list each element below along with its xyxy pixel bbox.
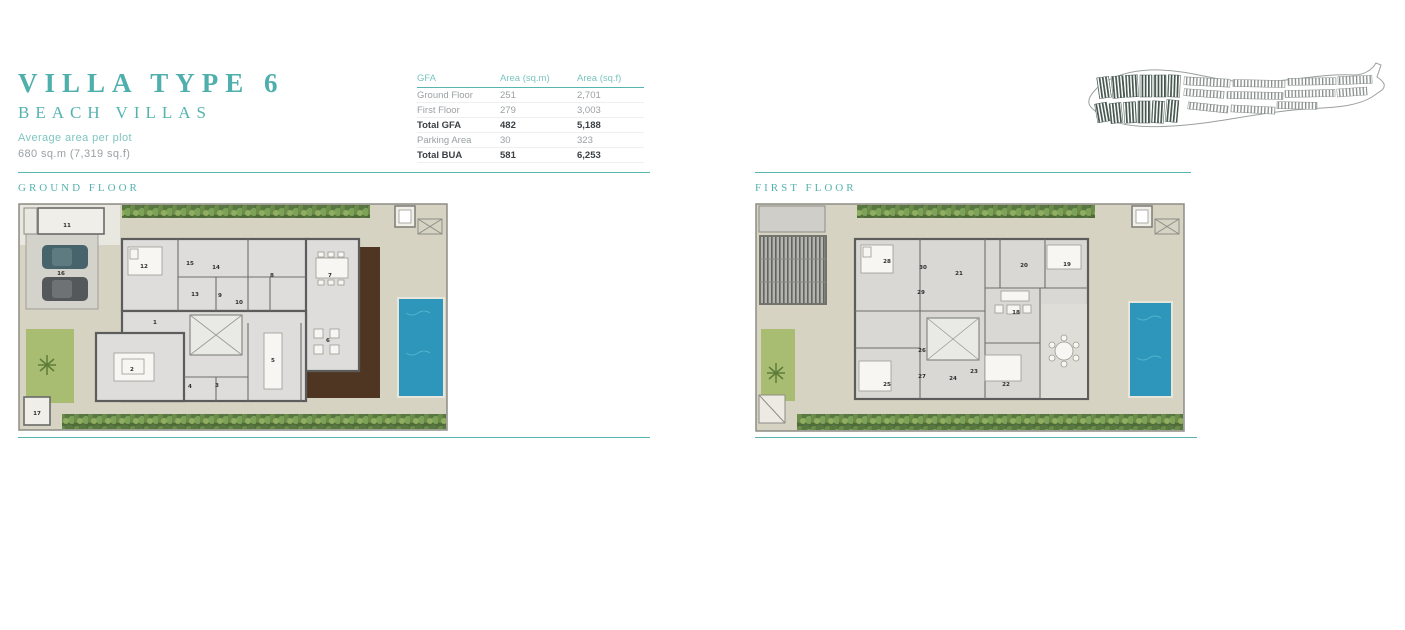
roof-slab xyxy=(759,206,825,232)
site-units-highlighted xyxy=(1095,75,1181,124)
hedge-bottom xyxy=(62,414,446,429)
room-number-22: 22 xyxy=(1002,382,1010,388)
staircase xyxy=(190,315,242,355)
first-floor-label: FIRST FLOOR xyxy=(755,182,857,194)
gfa-row-ground-floor: Ground Floor 251 2,701 xyxy=(417,88,644,103)
room-number-29: 29 xyxy=(917,290,925,296)
swimming-pool xyxy=(398,298,444,397)
room-number-5: 5 xyxy=(271,358,275,364)
staircase xyxy=(927,318,979,360)
first-floor-plan: 18192021222324252627282930 xyxy=(755,203,1185,432)
room-number-17: 17 xyxy=(33,411,41,417)
room-number-10: 10 xyxy=(235,300,243,306)
room-number-11: 11 xyxy=(63,223,71,229)
room-number-12: 12 xyxy=(140,264,148,270)
room-number-24: 24 xyxy=(949,376,957,382)
col-area-sqf: Area (sq.f) xyxy=(577,73,644,84)
ground-floor-label: GROUND FLOOR xyxy=(18,182,140,194)
room-number-3: 3 xyxy=(215,383,219,389)
room-number-18: 18 xyxy=(1012,310,1020,316)
pergola xyxy=(760,236,826,304)
utility-room xyxy=(24,208,37,234)
gfa-row-parking-area: Parking Area 30 323 xyxy=(417,133,644,148)
average-area-label: Average area per plot xyxy=(18,132,132,144)
page-subtitle: BEACH VILLAS xyxy=(18,103,212,123)
room-number-1: 1 xyxy=(153,320,157,326)
room-number-30: 30 xyxy=(919,265,927,271)
room-number-16: 16 xyxy=(57,271,65,277)
col-area-sqm: Area (sq.m) xyxy=(500,73,577,84)
room-number-15: 15 xyxy=(186,261,194,267)
lawn xyxy=(761,329,795,401)
room-number-21: 21 xyxy=(955,271,963,277)
gfa-row-total-gfa: Total GFA 482 5,188 xyxy=(417,118,644,133)
hedge-top xyxy=(122,205,370,218)
room-number-23: 23 xyxy=(970,369,978,375)
page-title: VILLA TYPE 6 xyxy=(18,68,285,99)
room-number-25: 25 xyxy=(883,382,891,388)
room-number-14: 14 xyxy=(212,265,220,271)
room-number-6: 6 xyxy=(326,338,330,344)
room-number-13: 13 xyxy=(191,292,199,298)
corner-ramp xyxy=(759,395,785,423)
room-number-20: 20 xyxy=(1020,263,1028,269)
hedge-bottom xyxy=(797,414,1183,430)
car-icon xyxy=(42,277,88,301)
gfa-table: GFA Area (sq.m) Area (sq.f) Ground Floor… xyxy=(417,70,644,163)
room-number-27: 27 xyxy=(918,374,926,380)
average-area-value: 680 sq.m (7,319 sq.f) xyxy=(18,148,130,160)
room-number-19: 19 xyxy=(1063,262,1071,268)
divider-right-top xyxy=(755,172,1191,173)
room-number-2: 2 xyxy=(130,367,134,373)
room-number-8: 8 xyxy=(270,273,274,279)
site-units-outline xyxy=(1184,75,1372,114)
brochure-page: VILLA TYPE 6 BEACH VILLAS Average area p… xyxy=(0,0,1405,630)
room-number-4: 4 xyxy=(188,384,192,390)
ground-floor-plan: 1234567891011121314151617 xyxy=(18,203,448,431)
room-number-9: 9 xyxy=(218,293,222,299)
storage-room xyxy=(38,208,104,234)
col-gfa: GFA xyxy=(417,73,500,84)
car-icon xyxy=(42,245,88,269)
swimming-pool xyxy=(1129,302,1172,397)
site-map-icon xyxy=(1084,57,1390,143)
gfa-row-first-floor: First Floor 279 3,003 xyxy=(417,103,644,118)
room-number-28: 28 xyxy=(883,259,891,265)
gfa-table-header: GFA Area (sq.m) Area (sq.f) xyxy=(417,70,644,88)
lawn xyxy=(26,329,74,403)
skylight xyxy=(1136,210,1148,223)
room-number-7: 7 xyxy=(328,273,332,279)
divider-left-bottom xyxy=(18,437,650,438)
room-number-26: 26 xyxy=(918,348,926,354)
skylight xyxy=(399,210,411,223)
gfa-row-total-bua: Total BUA 581 6,253 xyxy=(417,148,644,163)
divider-left-top xyxy=(18,172,650,173)
divider-right-bottom xyxy=(755,437,1197,438)
hedge-top xyxy=(857,205,1095,218)
